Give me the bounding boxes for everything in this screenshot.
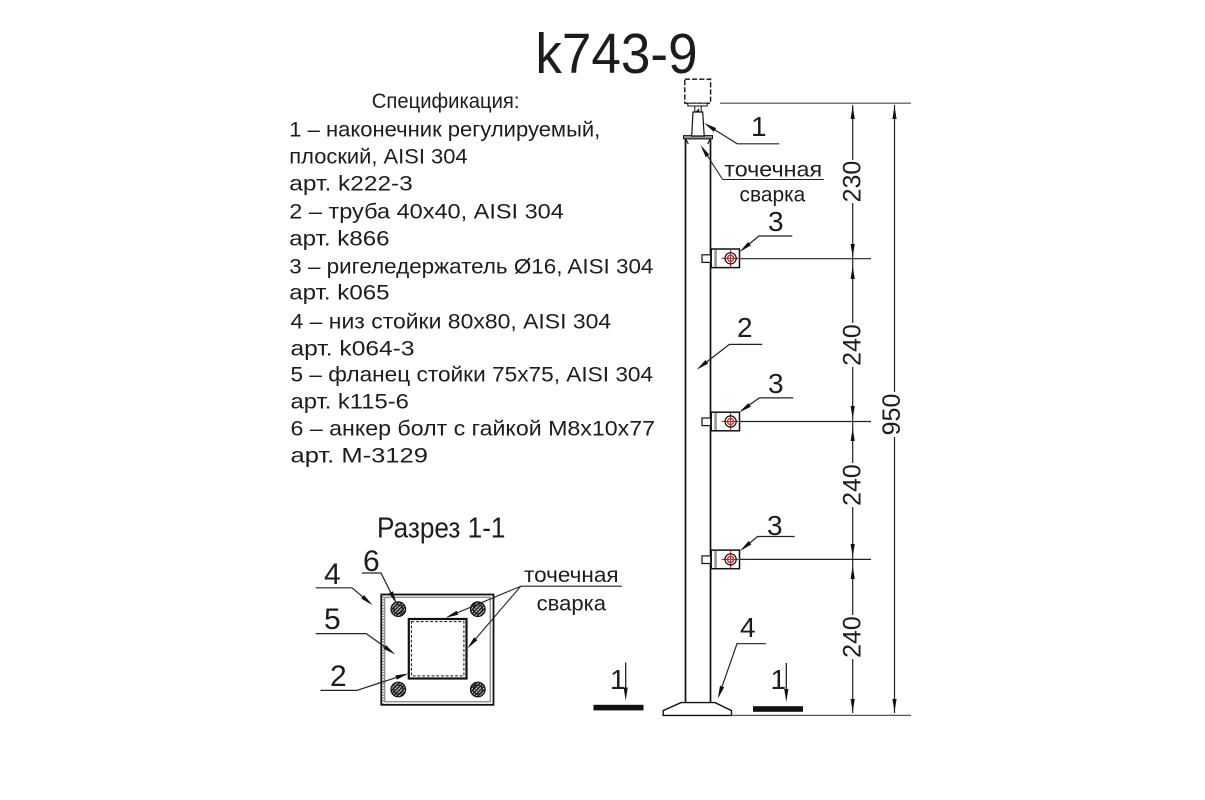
- svg-text:5: 5: [324, 603, 341, 636]
- svg-text:240: 240: [839, 616, 867, 658]
- svg-text:3: 3: [768, 368, 784, 399]
- svg-text:1: 1: [751, 111, 767, 142]
- svg-text:плоский, AISI 304: плоский, AISI 304: [289, 146, 468, 169]
- svg-text:240: 240: [839, 324, 867, 366]
- svg-text:230: 230: [839, 161, 867, 203]
- svg-text:Спецификация:: Спецификация:: [372, 90, 520, 113]
- svg-text:Разрез 1-1: Разрез 1-1: [377, 513, 506, 545]
- svg-text:6 – анкер болт с гайкой М8х10х: 6 – анкер болт с гайкой М8х10х77: [291, 418, 656, 441]
- svg-text:4 – низ стойки 80х80, AISI 304: 4 – низ стойки 80х80, AISI 304: [291, 311, 612, 334]
- svg-text:1 – наконечник регулируемый,: 1 – наконечник регулируемый,: [289, 119, 600, 142]
- svg-text:240: 240: [839, 464, 867, 506]
- svg-text:3: 3: [768, 206, 784, 237]
- svg-text:сварка: сварка: [740, 184, 806, 207]
- svg-text:k743-9: k743-9: [535, 22, 697, 86]
- svg-text:арт. k115-6: арт. k115-6: [291, 391, 409, 414]
- svg-text:1: 1: [610, 664, 626, 695]
- svg-text:1: 1: [771, 664, 787, 695]
- svg-text:3 – ригеледержатель Ø16, AISI: 3 – ригеледержатель Ø16, AISI 304: [289, 256, 653, 279]
- svg-text:2: 2: [330, 660, 347, 693]
- svg-text:950: 950: [878, 394, 906, 436]
- svg-text:арт. k222-3: арт. k222-3: [289, 173, 413, 196]
- svg-text:арт. k065: арт. k065: [289, 282, 389, 305]
- svg-text:сварка: сварка: [537, 593, 607, 616]
- svg-text:5 – фланец стойки 75х75, AISI: 5 – фланец стойки 75х75, AISI 304: [291, 364, 654, 387]
- svg-text:4: 4: [740, 612, 756, 643]
- svg-text:4: 4: [324, 558, 341, 591]
- svg-text:арт. М-3129: арт. М-3129: [291, 445, 428, 468]
- svg-text:арт. k866: арт. k866: [289, 228, 389, 251]
- svg-text:2: 2: [737, 312, 753, 343]
- svg-text:арт. k064-3: арт. k064-3: [291, 338, 415, 361]
- svg-text:точечная: точечная: [724, 159, 822, 182]
- svg-text:точечная: точечная: [524, 564, 619, 587]
- svg-text:2 – труба 40х40, AISI 304: 2 – труба 40х40, AISI 304: [289, 201, 564, 224]
